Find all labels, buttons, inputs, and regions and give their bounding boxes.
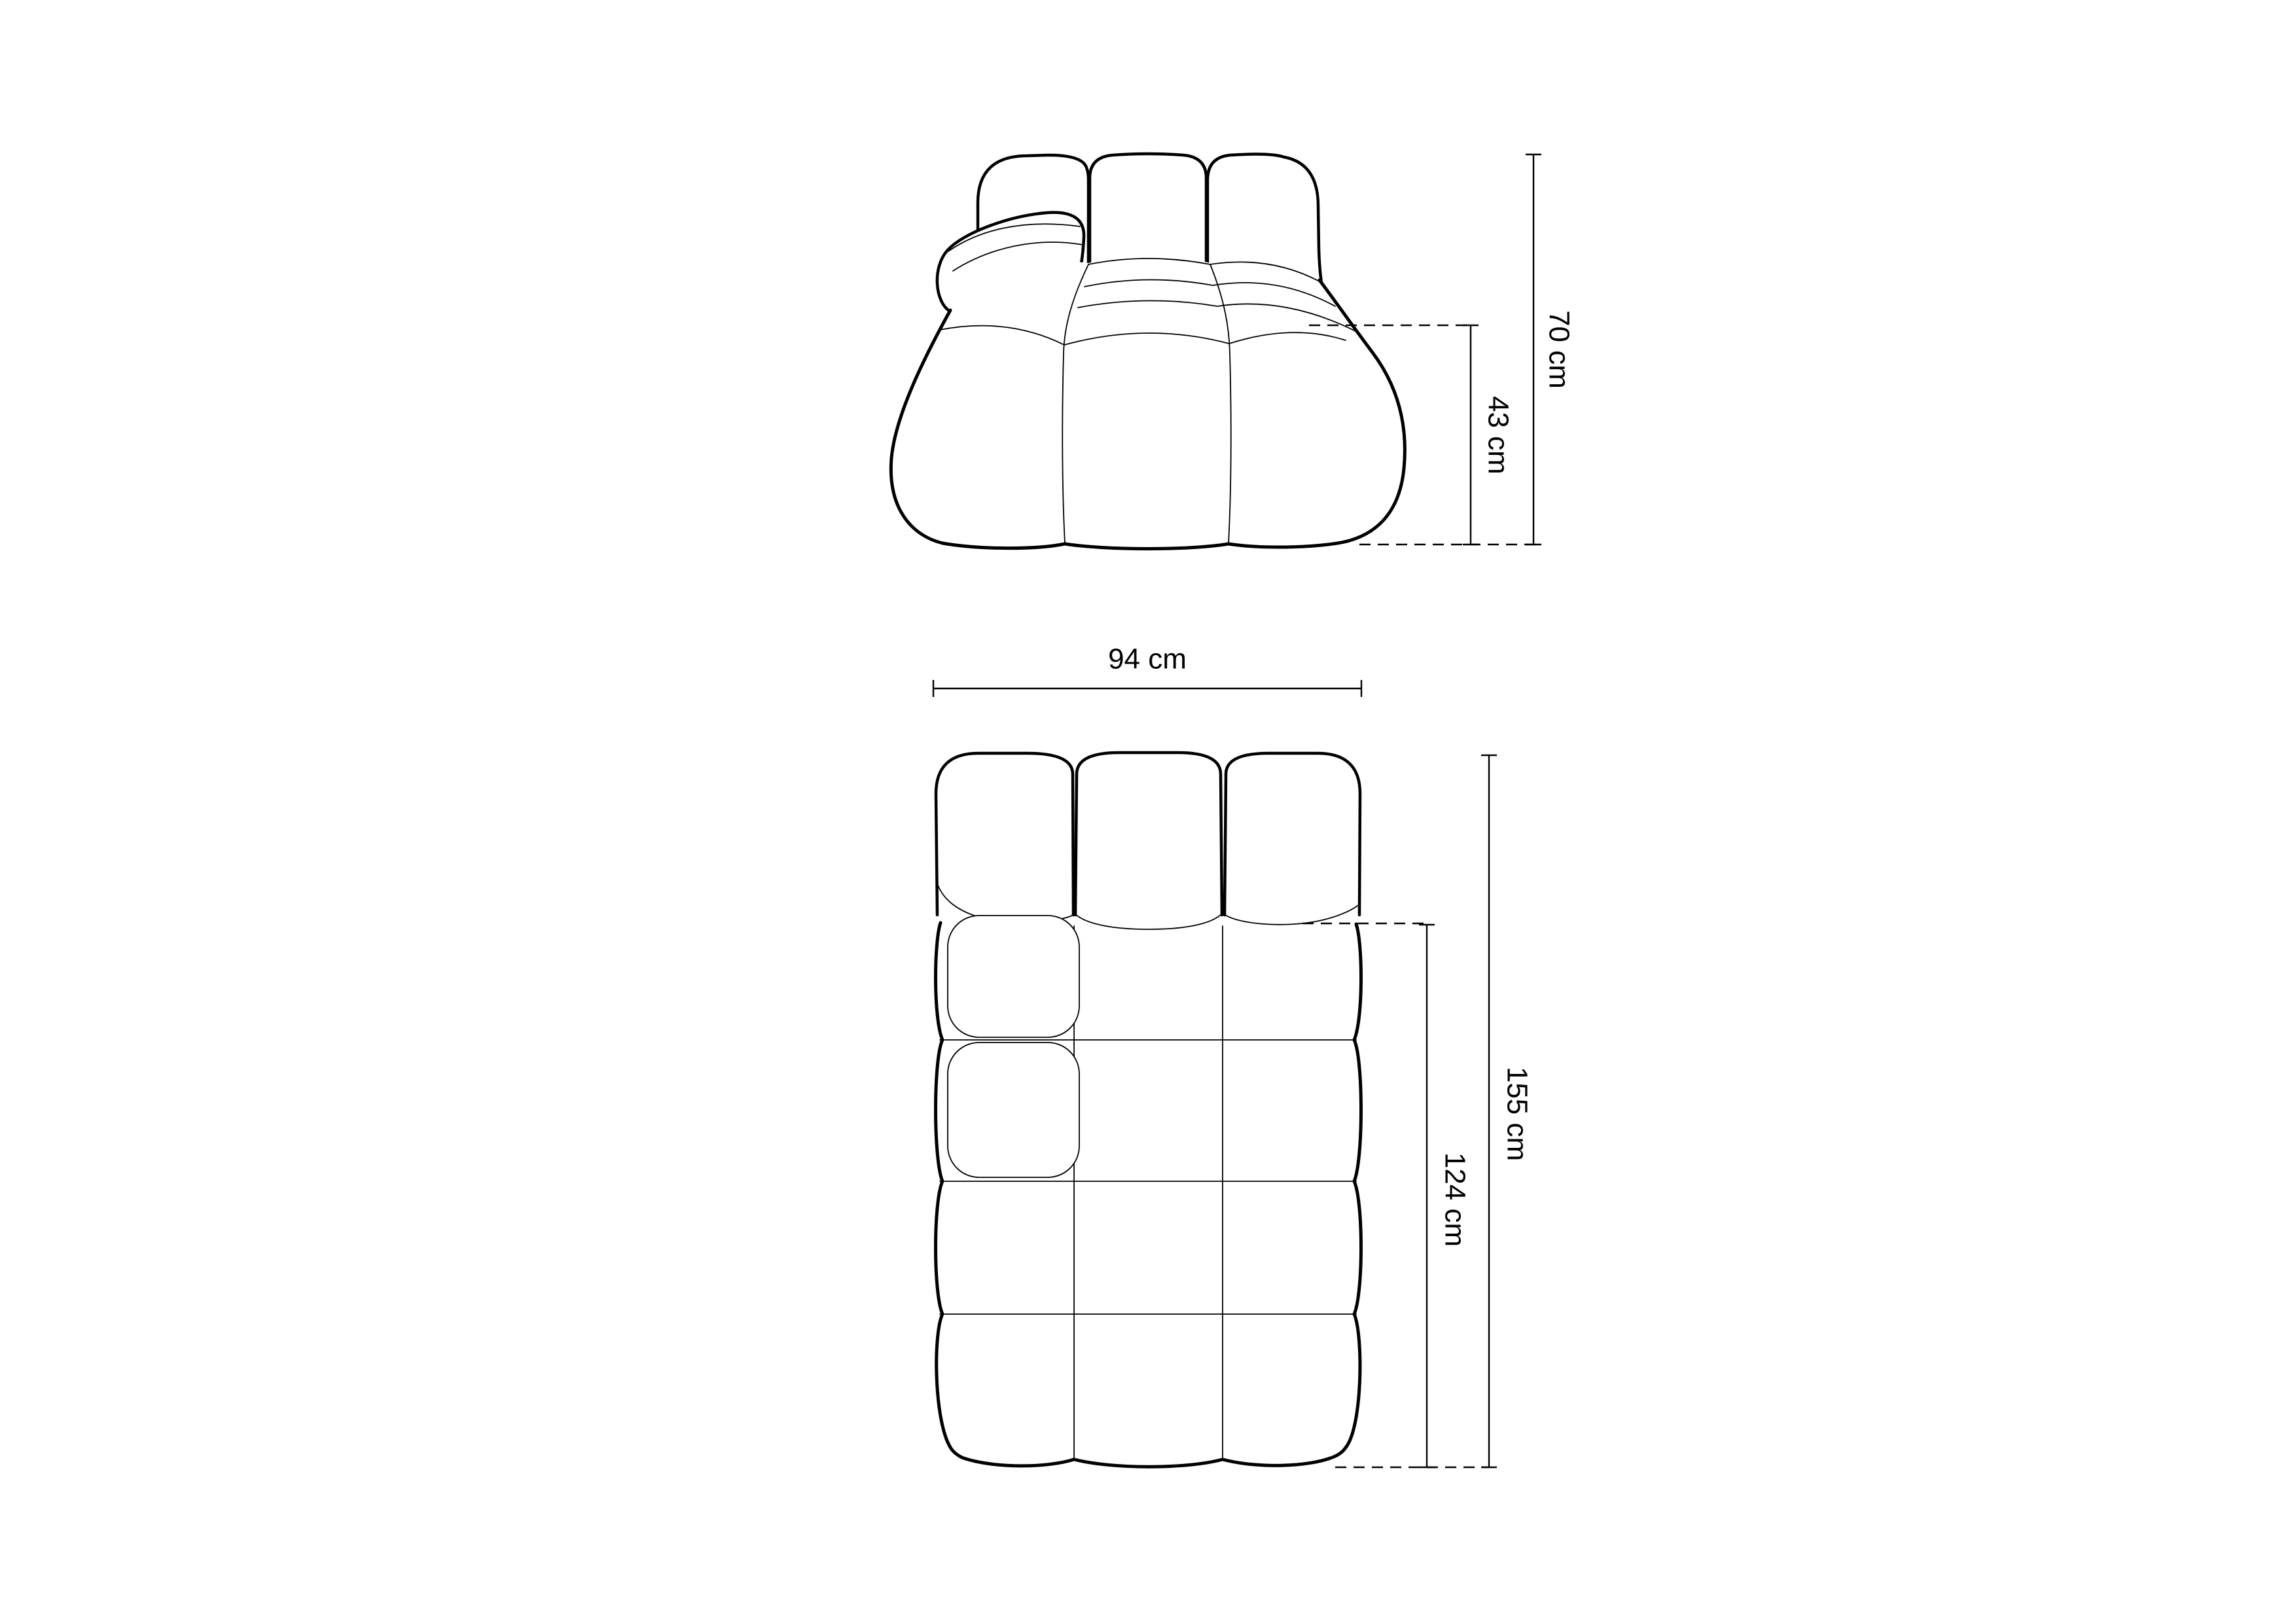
overall-depth-label: 155 cm bbox=[1501, 1067, 1534, 1161]
sofa-dimension-drawing: 43 cm 70 cm 94 cm bbox=[0, 0, 2296, 1623]
seat-height-label: 43 cm bbox=[1482, 396, 1515, 474]
plan-back-cushion-middle bbox=[1075, 753, 1222, 915]
dimension-overall-depth: 155 cm bbox=[1481, 755, 1534, 1467]
plan-back-cushion-right bbox=[1225, 753, 1360, 915]
dimension-overall-width: 94 cm bbox=[933, 643, 1361, 698]
dimension-line-43 bbox=[1463, 325, 1479, 544]
plan-back-cushion-sag-seam bbox=[1075, 914, 1221, 929]
plan-back-cushion-left bbox=[936, 753, 1073, 915]
dimension-line-94 bbox=[933, 680, 1361, 697]
seat-depth-label: 124 cm bbox=[1439, 1152, 1471, 1247]
dimension-line-124 bbox=[1419, 925, 1435, 1467]
dimension-overall-height: 70 cm bbox=[1526, 154, 1575, 544]
dimension-seat-height: 43 cm bbox=[1463, 325, 1515, 544]
dimension-line-155 bbox=[1481, 755, 1497, 1467]
plan-armrest-cushion bbox=[948, 1043, 1079, 1177]
overall-width-label: 94 cm bbox=[1108, 643, 1187, 675]
overall-height-label: 70 cm bbox=[1543, 310, 1575, 389]
seat-body-fill bbox=[891, 257, 1405, 549]
dimension-line-70 bbox=[1526, 154, 1541, 544]
drawing-page: 43 cm 70 cm 94 cm bbox=[0, 0, 2296, 1623]
dimension-seat-depth: 124 cm bbox=[1419, 925, 1471, 1467]
top-view: 94 cm 124 cm bbox=[933, 643, 1534, 1468]
plan-armrest-cushion bbox=[948, 916, 1079, 1037]
front-view: 43 cm 70 cm bbox=[891, 154, 1575, 549]
